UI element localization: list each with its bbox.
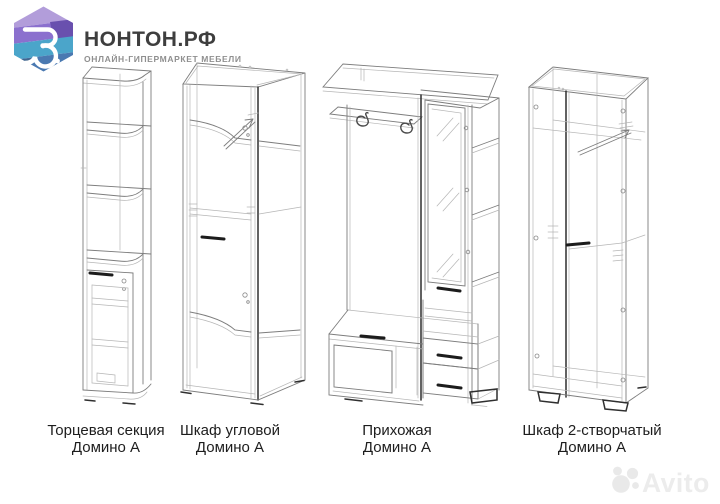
caption-two-door-wardrobe: Шкаф 2-створчатый Домино А	[492, 423, 692, 456]
corner-wardrobe-drawing-icon	[176, 58, 308, 410]
product-figure-hallway	[318, 58, 506, 420]
bench-door	[334, 345, 392, 393]
product-name: Шкаф 2-створчатый	[492, 423, 692, 440]
end-section-drawing-icon	[79, 62, 155, 408]
corner-wardrobe-shelf-and-rail	[190, 113, 300, 151]
product-figure-two-door-wardrobe	[526, 58, 652, 420]
bench-door-handle-icon	[361, 336, 384, 338]
corner-wardrobe-base	[181, 312, 305, 405]
corner-wardrobe-door	[189, 126, 301, 303]
wardrobe-handle-icon	[567, 243, 589, 245]
hallway-back-panel	[347, 105, 412, 310]
corner-wardrobe-handle-icon	[202, 237, 224, 239]
product-figure-end-section	[79, 62, 155, 408]
hanging-rail-icon	[224, 119, 255, 149]
product-name: Прихожая	[297, 423, 497, 440]
coat-hook-icon	[357, 113, 368, 126]
hallway-drawers	[423, 300, 499, 407]
brand-text: НОНТОН.РФ ОНЛАЙН-ГИПЕРМАРКЕТ МЕБЕЛИ	[84, 15, 242, 64]
product-series: Домино А	[492, 440, 692, 457]
caption-hallway: Прихожая Домино А	[297, 423, 497, 456]
corner-wardrobe-carcass	[183, 63, 305, 400]
drawer-handle-icon	[438, 355, 461, 358]
brand-name: НОНТОН.РФ	[84, 29, 242, 51]
drawer-handle-icon	[438, 385, 461, 388]
wardrobe-doors	[534, 91, 645, 397]
two-door-wardrobe-drawing-icon	[526, 58, 652, 420]
mirror-glass-icon	[437, 118, 459, 277]
catalog-image: НОНТОН.РФ ОНЛАЙН-ГИПЕРМАРКЕТ МЕБЕЛИ	[0, 0, 720, 504]
wardrobe-shelf-and-rail	[533, 120, 645, 155]
end-section-carcass	[81, 67, 151, 390]
end-section-shelves	[87, 122, 151, 265]
avito-watermark-text: Avito	[642, 468, 710, 498]
mirror-door-handle-icon	[438, 288, 460, 291]
end-section-door	[87, 270, 133, 393]
end-section-base	[83, 384, 151, 404]
avito-logo-icon	[612, 467, 639, 493]
wardrobe-carcass	[529, 67, 648, 403]
end-section-door-handle-icon	[90, 273, 112, 275]
product-figure-corner-wardrobe	[176, 58, 308, 410]
avito-watermark: Avito	[605, 461, 720, 501]
brand-logo-icon	[12, 6, 75, 72]
wardrobe-base	[529, 366, 648, 411]
product-series: Домино А	[297, 440, 497, 457]
hallway-drawing-icon	[318, 58, 506, 420]
